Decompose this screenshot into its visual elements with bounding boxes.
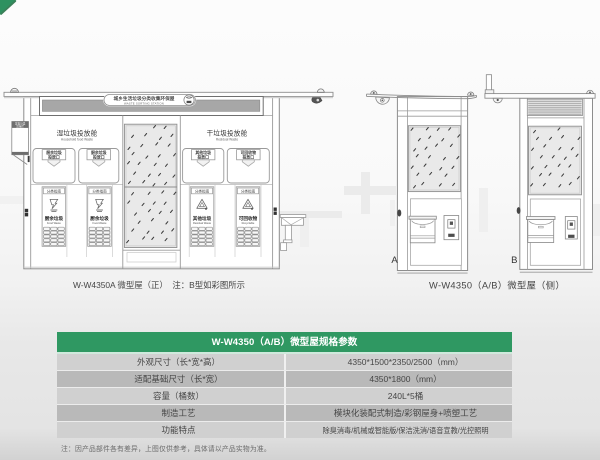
- svg-text:分类指南: 分类指南: [241, 189, 256, 194]
- svg-text:WASTE SORTING STATION: WASTE SORTING STATION: [124, 102, 164, 106]
- svg-text:A: A: [391, 255, 398, 266]
- svg-text:湿垃圾投放舱: 湿垃圾投放舱: [57, 129, 98, 138]
- svg-text:分类指南: 分类指南: [92, 189, 107, 194]
- svg-text:分类指南: 分类指南: [195, 189, 210, 194]
- svg-text:干垃圾投放舱: 干垃圾投放舱: [207, 129, 248, 138]
- svg-text:Residual Waste: Residual Waste: [193, 221, 212, 225]
- svg-text:Food Waste: Food Waste: [93, 221, 107, 225]
- svg-text:Residual Waste: Residual Waste: [216, 137, 238, 141]
- svg-text:Recyclable: Recyclable: [242, 221, 255, 225]
- svg-text:Food Waste: Food Waste: [47, 221, 61, 225]
- svg-text:B: B: [511, 255, 517, 266]
- svg-text:W-W4350（A/B）微型屋（侧）: W-W4350（A/B）微型屋（侧）: [429, 280, 565, 291]
- svg-text:投放口: 投放口: [242, 155, 254, 160]
- svg-text:投放口: 投放口: [197, 155, 209, 160]
- svg-text:分类指南: 分类指南: [47, 189, 62, 194]
- svg-text:投放口: 投放口: [93, 155, 105, 160]
- svg-text:宣传栏: 宣传栏: [16, 124, 24, 128]
- svg-text:Household food Waste: Household food Waste: [61, 137, 93, 141]
- svg-text:W-W4350A 微型屋（正） 注：B型如彩图所示: W-W4350A 微型屋（正） 注：B型如彩图所示: [73, 280, 245, 290]
- svg-text:投放口: 投放口: [48, 155, 60, 160]
